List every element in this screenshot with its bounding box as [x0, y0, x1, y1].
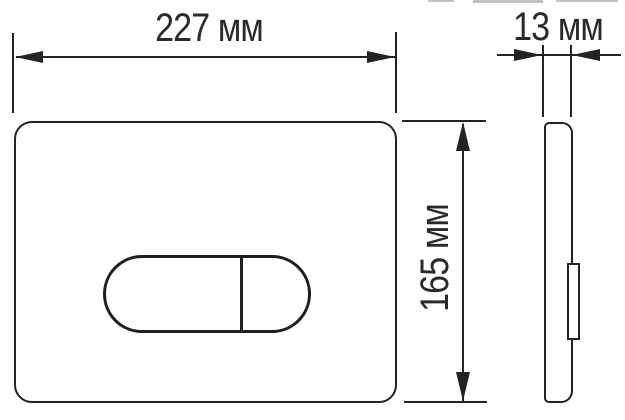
arrowhead-down-icon: [456, 372, 470, 401]
width-dimension-line: [16, 56, 395, 58]
mounting-tab: [567, 263, 580, 340]
height-dimension-label: 165 мм: [415, 204, 455, 312]
arrowhead-inward-right-icon: [514, 49, 542, 61]
cropped-artifact: [473, 0, 543, 3]
flush-button-oval: [103, 255, 311, 333]
arrowhead-right-icon: [367, 51, 395, 63]
cropped-artifact: [556, 0, 618, 2]
depth-dimension-label: 13 мм: [513, 7, 603, 47]
technical-drawing-canvas: 227 мм 13 мм 165 мм: [0, 0, 625, 420]
depth-extension-line-left: [542, 45, 544, 117]
width-extension-line-left: [12, 33, 14, 113]
height-extension-line-bottom: [404, 401, 487, 403]
arrowhead-inward-left-icon: [572, 49, 600, 61]
height-dimension-line: [462, 124, 464, 401]
cropped-artifact: [428, 0, 454, 2]
flush-button-divider: [240, 257, 243, 331]
width-extension-line-right: [395, 32, 397, 113]
arrowhead-left-icon: [15, 51, 43, 63]
height-extension-line-top: [402, 120, 486, 122]
width-dimension-label: 227 мм: [155, 8, 263, 48]
arrowhead-up-icon: [456, 122, 470, 151]
